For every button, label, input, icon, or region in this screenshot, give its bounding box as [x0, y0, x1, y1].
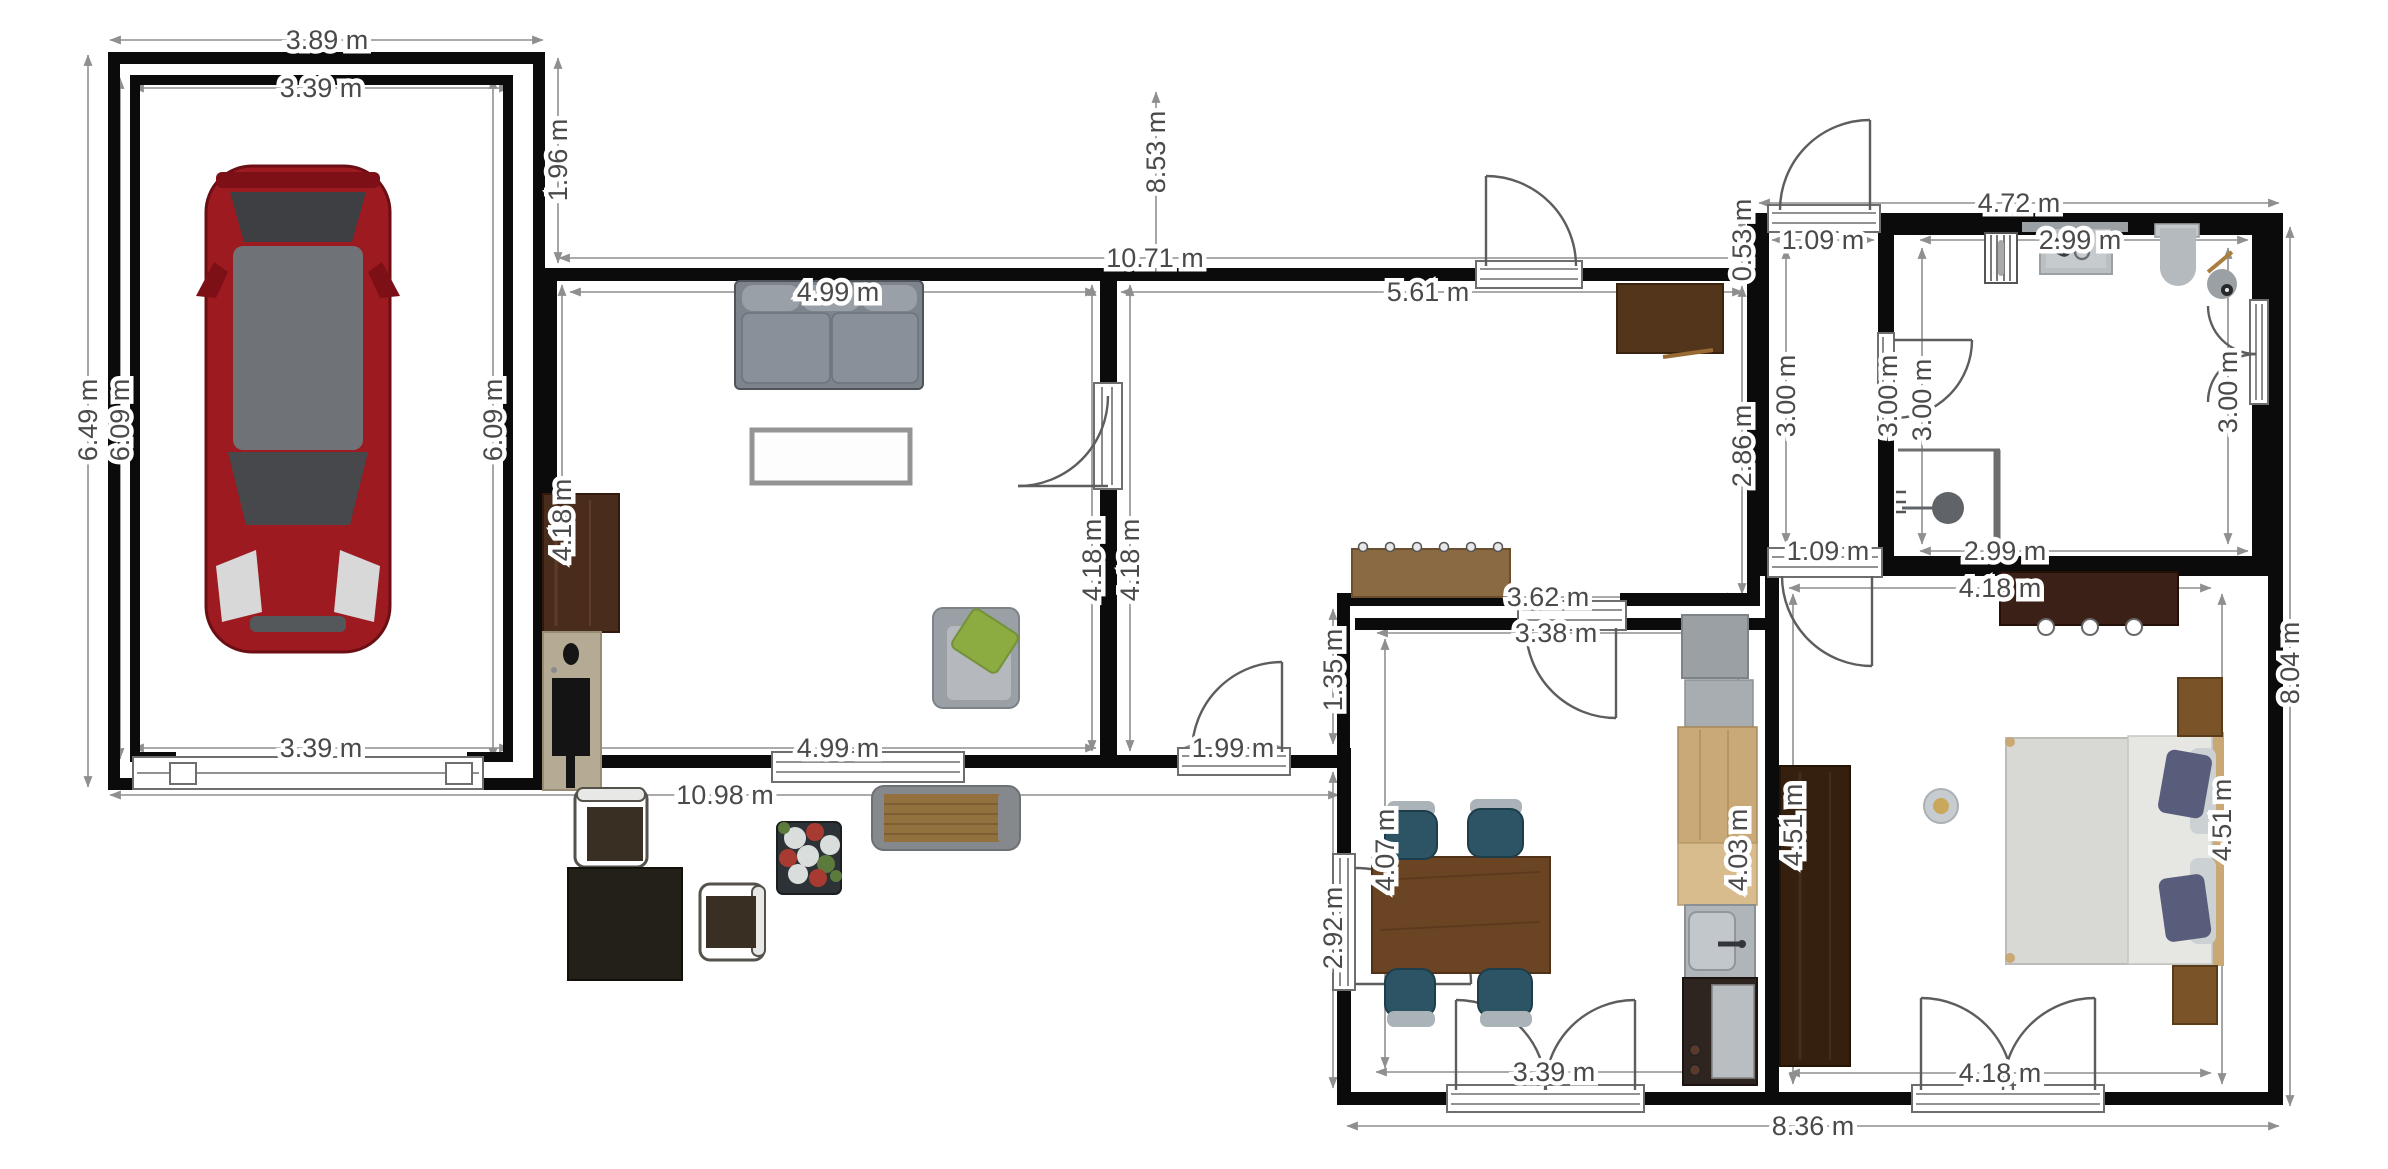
terrace-table[interactable]: [568, 868, 682, 980]
dim-label: 6.49 m: [73, 379, 103, 462]
dim-label: 3.00 m: [1907, 359, 1937, 442]
dim-label: 3.39 m: [280, 73, 363, 103]
dim-label: 4.18 m: [1959, 1058, 2042, 1088]
dim-label: 2.99 m: [2039, 225, 2122, 255]
toilet-brush[interactable]: [2207, 252, 2237, 299]
dim-label: 0.53 m: [1727, 199, 1757, 282]
dim-label: 3.00 m: [2213, 351, 2243, 434]
desk[interactable]: [1617, 284, 1723, 357]
dim-label: 4.03 m: [1723, 809, 1753, 892]
flower-pot[interactable]: [777, 822, 842, 894]
dim-label: 3.39 m: [1513, 1057, 1596, 1087]
dim-label: 3.38 m: [1515, 618, 1598, 648]
terrace-bench[interactable]: [872, 786, 1020, 850]
dim-label: 2.86 m: [1727, 405, 1757, 488]
dimension-labels: 3.89 m 3.39 m 6.49 m 6.09 m 6.09 m 3.39 …: [73, 25, 2305, 1141]
dim-label: 1.96 m: [543, 119, 573, 202]
armchair[interactable]: [933, 607, 1020, 708]
kitchen-stove-dishwasher[interactable]: [1683, 978, 1757, 1085]
dim-label: 10.98 m: [676, 780, 774, 810]
dim-label: 4.51 m: [2207, 779, 2237, 862]
kitchen-sink[interactable]: [1685, 905, 1755, 978]
radiator[interactable]: [1985, 233, 2017, 283]
dim-label: 4.72 m: [1978, 188, 2061, 218]
terrace-chair-west[interactable]: [700, 884, 765, 960]
dim-label: 1.09 m: [1782, 225, 1865, 255]
dining-french-door[interactable]: [1447, 1000, 1644, 1112]
front-door[interactable]: [1768, 120, 1880, 232]
dim-label: 1.09 m: [1787, 536, 1870, 566]
dim-label: 4.99 m: [797, 277, 880, 307]
wood-stove[interactable]: [543, 632, 601, 790]
dim-label: 3.89 m: [286, 25, 369, 55]
dim-label: 4.18 m: [1115, 519, 1145, 602]
bedroom-french-door[interactable]: [1912, 998, 2104, 1112]
hall-sideboard[interactable]: [1352, 543, 1510, 598]
dim-label: 4.99 m: [797, 733, 880, 763]
walls[interactable]: [108, 52, 2283, 1105]
bedroom-stool[interactable]: [1924, 789, 1958, 823]
coffee-table[interactable]: [752, 430, 910, 483]
dim-label: 3.39 m: [280, 733, 363, 763]
dim-label: 4.18 m: [547, 479, 577, 562]
dim-label: 4.07 m: [1370, 809, 1400, 892]
dim-label: 1.35 m: [1318, 629, 1348, 712]
dim-label: 6.09 m: [478, 379, 508, 462]
dim-label: 10.71 m: [1106, 243, 1204, 273]
toilet[interactable]: [2155, 224, 2199, 286]
dim-label: 8.04 m: [2275, 622, 2305, 705]
nightstand-top[interactable]: [2178, 678, 2222, 736]
bed[interactable]: [2005, 732, 2224, 966]
dim-label: 1.99 m: [1192, 733, 1275, 763]
living-hall-door[interactable]: [1018, 383, 1122, 489]
dim-label: 5.61 m: [1387, 277, 1470, 307]
dim-label: 4.51 m: [1778, 784, 1808, 867]
dim-label: 8.53 m: [1141, 111, 1171, 194]
dim-label: 4.18 m: [1077, 519, 1107, 602]
car[interactable]: [196, 166, 400, 652]
dim-label: 3.00 m: [1771, 355, 1801, 438]
dim-label: 4.18 m: [1959, 573, 2042, 603]
nightstand-bottom[interactable]: [2173, 966, 2217, 1024]
terrace-chair-north[interactable]: [575, 788, 647, 867]
dim-label: 3.00 m: [1873, 355, 1903, 438]
floor-plan-canvas: 3.89 m 3.39 m 6.49 m 6.09 m 6.09 m 3.39 …: [0, 0, 2388, 1169]
dim-label: 2.99 m: [1964, 536, 2047, 566]
dim-label: 2.92 m: [1318, 887, 1348, 970]
dim-label: 3.62 m: [1507, 582, 1590, 612]
hall-entry-door[interactable]: [1476, 176, 1582, 288]
dim-label: 8.36 m: [1772, 1111, 1855, 1141]
dim-label: 6.09 m: [105, 379, 135, 462]
